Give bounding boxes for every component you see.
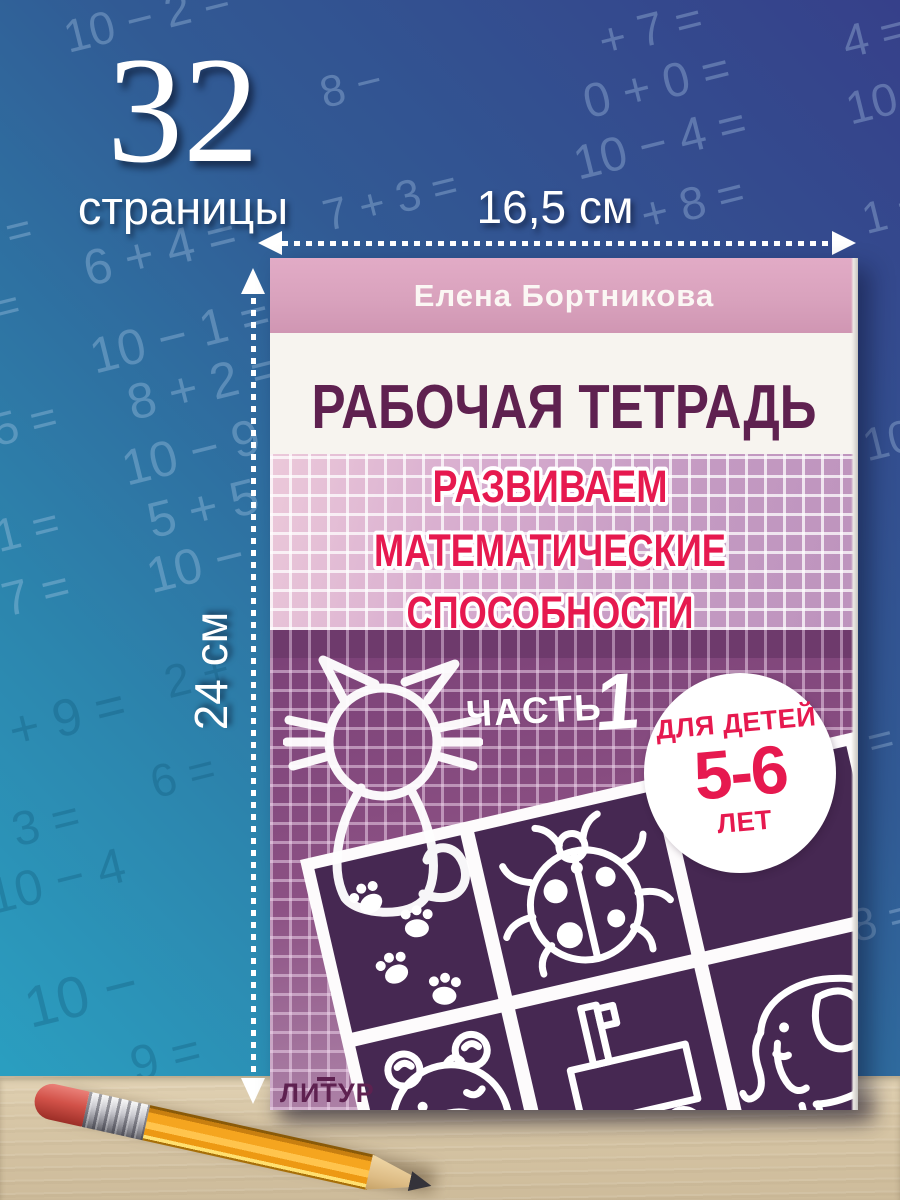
height-dimension-label: 24 см — [184, 581, 236, 761]
publisher-logo: ЛИТУР — [280, 1078, 375, 1109]
series-title: РАБОЧАЯ ТЕТРАДЬ — [270, 333, 858, 454]
page-count-word: страницы — [28, 180, 338, 235]
age-badge-content: для детей 5-6 лет — [654, 701, 825, 845]
title-line-1: РАЗВИВАЕМ — [433, 461, 668, 512]
book-cover: Елена Бортникова РАБОЧАЯ ТЕТРАДЬ РАЗВИВА… — [270, 258, 858, 1110]
arrow-right-icon — [832, 231, 856, 255]
math-equation: 4 = — [836, 1, 900, 69]
panel-cell-elephant — [708, 924, 858, 1110]
math-equation: 10 − — [857, 398, 900, 472]
math-equation: = — [862, 714, 899, 769]
panel-cell-cart — [515, 968, 734, 1110]
math-equation: + 9 = — [3, 675, 133, 762]
page-count-annotation: 32 страницы — [28, 34, 338, 235]
book-page-edge — [851, 258, 858, 1110]
part-number: 1 — [593, 655, 644, 750]
title-line-3: СПОСОБНОСТИ — [407, 587, 694, 630]
arrow-down-icon — [241, 1078, 265, 1104]
math-equation: 5 = — [0, 389, 63, 457]
math-equation: 10 − — [18, 949, 145, 1042]
math-equation: 7 = — [0, 559, 76, 629]
author-band: Елена Бортникова — [270, 258, 858, 333]
elephant-icon — [708, 924, 858, 1110]
main-title: РАЗВИВАЕМ МАТЕМАТИЧЕСКИЕ СПОСОБНОСТИ — [270, 454, 858, 630]
arrow-up-icon — [241, 268, 265, 294]
product-photo: 10 − 2 =8 −+ 7 =4 =0 + 0 =1010 − 4 =+ 8 … — [0, 0, 900, 1200]
arrow-left-icon — [258, 231, 282, 255]
bear-icon — [355, 1013, 541, 1110]
math-equation: 10 — [840, 71, 900, 136]
cat-outline-icon — [283, 650, 483, 920]
math-equation: 1 = — [0, 495, 65, 563]
width-dimension-label: 16,5 см — [405, 180, 705, 234]
author-name: Елена Бортникова — [414, 278, 714, 314]
publisher-logo-bar — [317, 1077, 335, 1081]
page-count-number: 32 — [28, 34, 338, 186]
width-dimension-line — [282, 241, 832, 246]
math-equation: = — [0, 280, 25, 335]
series-title-text: РАБОЧАЯ ТЕТРАДЬ — [312, 373, 817, 442]
age-badge: для детей 5-6 лет — [644, 673, 836, 873]
part-label: ЧАСТЬ — [465, 686, 604, 735]
title-line-2: МАТЕМАТИЧЕСКИЕ — [374, 525, 726, 576]
panel-cell-bear — [355, 1013, 541, 1110]
publisher-name: ЛИТУР — [280, 1078, 375, 1108]
cart-icon — [515, 968, 734, 1110]
height-dimension-line — [251, 298, 256, 1074]
math-equation: 1 = — [857, 181, 900, 245]
